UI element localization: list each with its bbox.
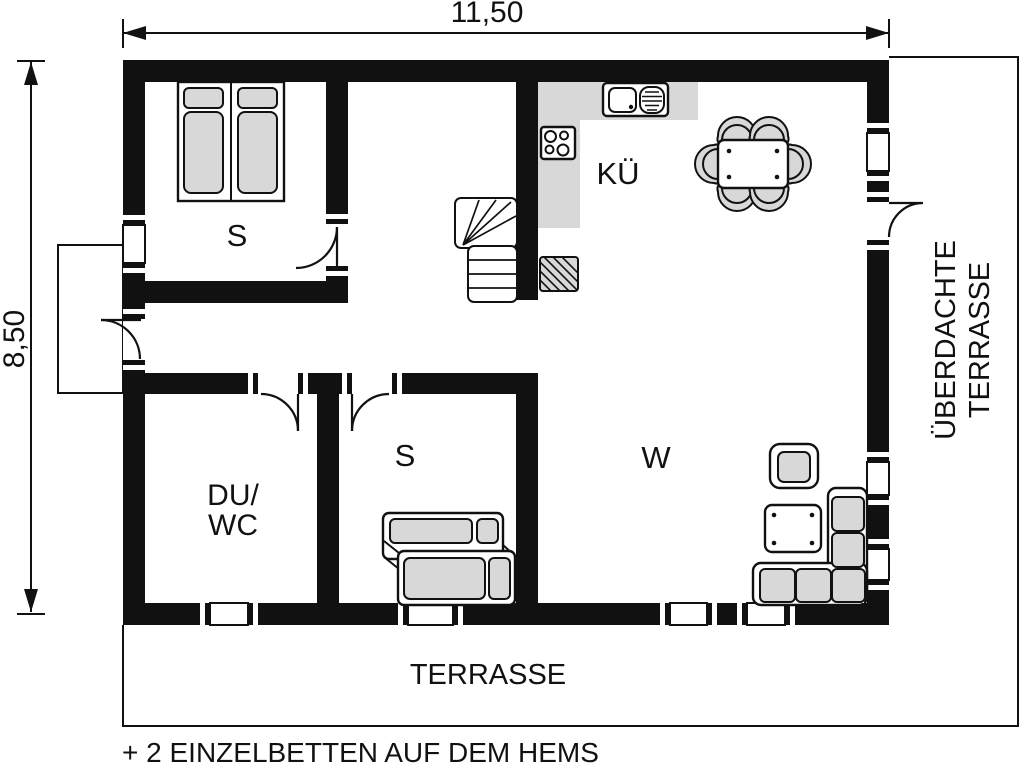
bedroom-bottom-door: [342, 373, 402, 431]
entrance-door: [101, 309, 145, 370]
floor-plan-page: 11,50 8,50 S KÜ DU/ WC S W TERRASSE ÜBER…: [0, 0, 1024, 768]
caption: + 2 EINZELBETTEN AUF DEM HEMS: [122, 738, 642, 768]
dining-table-icon: [718, 140, 788, 188]
window-living-bottom-wall-1: [660, 603, 717, 625]
stairs-icon: [455, 198, 517, 302]
room-label-kitchen: KÜ: [518, 157, 718, 190]
room-label-living: W: [556, 441, 756, 474]
window-living-right-wall-2: [867, 539, 889, 590]
window-duwc-bottom-wall: [200, 603, 258, 625]
floor-plan-drawing: [0, 0, 1024, 768]
coffee-table-icon: [765, 505, 821, 552]
room-label-bedroom-top: S: [137, 219, 337, 252]
window-dining-right-wall: [867, 123, 889, 181]
covered-terrace-label: ÜBERDACHTE TERRASSE: [929, 180, 997, 500]
terrace-label: TERRASSE: [388, 660, 588, 691]
terrace-door: [867, 192, 923, 250]
double-bed-icon: [178, 82, 284, 201]
sink-icon: [603, 83, 668, 116]
window-bedroom-bottom-wall: [398, 603, 463, 625]
duwc-door: [248, 373, 308, 431]
bunk-beds-icon: [383, 513, 515, 605]
armchair-icon: [770, 444, 818, 488]
room-label-shower-wc: DU/ WC: [133, 481, 333, 541]
dimension-height-label: 8,50: [0, 279, 31, 399]
room-label-bedroom-bottom: S: [305, 439, 505, 472]
dimension-width-label: 11,50: [387, 0, 587, 29]
window-living-right-wall-1: [867, 452, 889, 505]
window-living-bottom-wall-2: [737, 603, 795, 625]
stove-icon: [541, 127, 575, 159]
